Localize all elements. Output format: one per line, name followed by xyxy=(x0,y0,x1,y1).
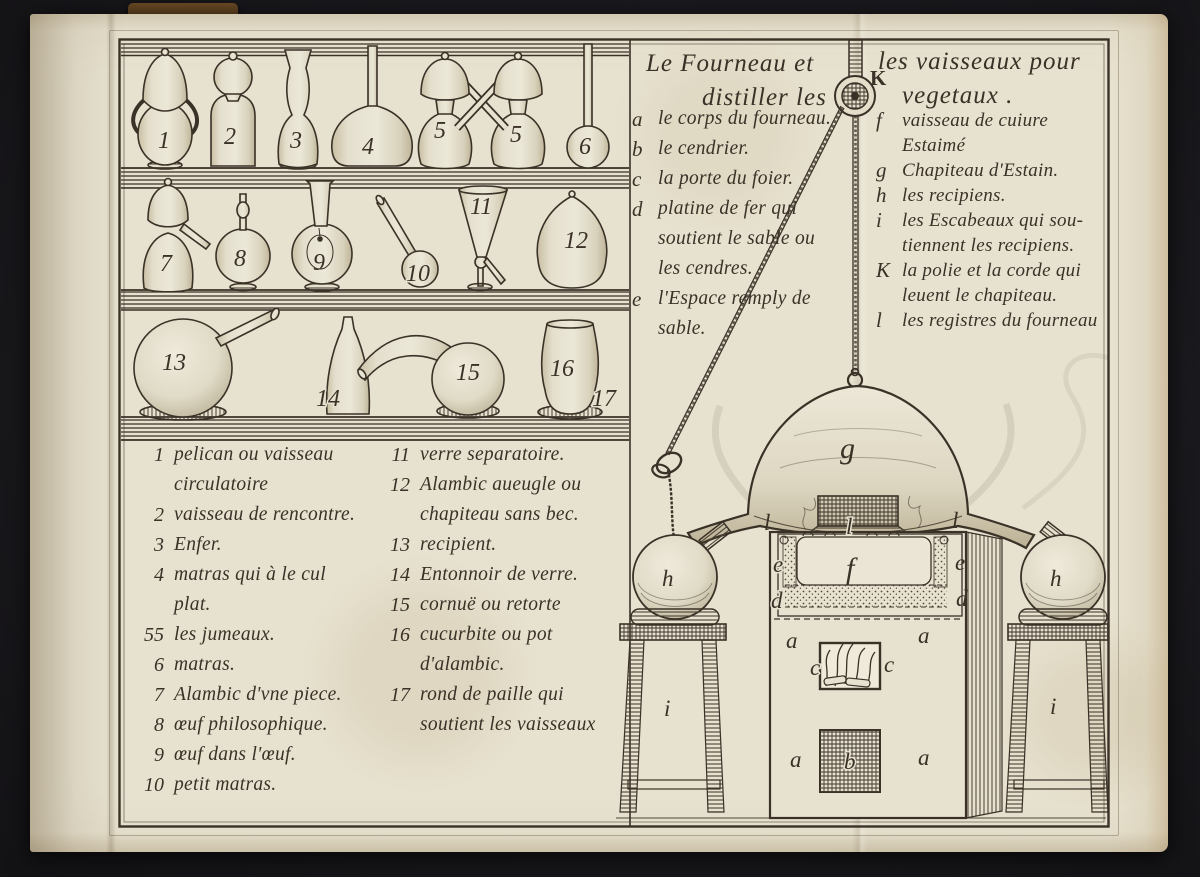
label-c-left: c xyxy=(810,655,820,680)
vessel-number: 5 xyxy=(510,122,522,148)
legend-item: lles registres du fourneau xyxy=(876,308,1112,333)
legend-key: l xyxy=(876,308,902,333)
legend-item: gChapiteau d'Estain. xyxy=(876,158,1112,183)
legend-item: 17rond de paille quisoutient les vaissea… xyxy=(380,680,630,740)
shelf-row-2-vessels xyxy=(143,179,607,292)
vessel-number: 5 xyxy=(434,118,446,144)
letter-legend-left: ale corps du fourneau.ble cendrier.cla p… xyxy=(632,104,870,344)
legend-key: 4 xyxy=(134,560,174,590)
vessel-number: 13 xyxy=(162,350,186,376)
legend-key: 8 xyxy=(134,710,174,740)
legend-key: 13 xyxy=(380,530,420,560)
legend-key: c xyxy=(632,164,658,194)
legend-key: b xyxy=(632,134,658,164)
label-a-bottom-right: a xyxy=(918,745,930,770)
legend-key: K xyxy=(876,258,902,283)
legend-item: 55les jumeaux. xyxy=(134,620,384,650)
legend-key: 16 xyxy=(380,620,420,650)
legend-key: g xyxy=(876,158,902,183)
legend-item: 3Enfer. xyxy=(134,530,384,560)
legend-item: 2vaisseau de rencontre. xyxy=(134,500,384,530)
legend-text: les jumeaux. xyxy=(174,620,275,650)
legend-text: matras qui à le culplat. xyxy=(174,560,326,620)
label-c-right: c xyxy=(884,652,894,677)
pulley-label-K: K xyxy=(870,66,886,91)
vessel-number: 6 xyxy=(579,134,591,160)
legend-item: 15cornuë ou retorte xyxy=(380,590,630,620)
legend-key: 14 xyxy=(380,560,420,590)
legend-item: 11verre separatoire. xyxy=(380,440,630,470)
legend-text: rond de paille quisoutient les vaisseaux xyxy=(420,680,596,740)
vessel-number: 1 xyxy=(158,128,170,154)
legend-key: 6 xyxy=(134,650,174,680)
legend-text: vaisseau de cuiureEstaimé xyxy=(902,108,1048,158)
label-l-left: l xyxy=(764,510,770,535)
legend-text: recipient. xyxy=(420,530,496,560)
label-e-right: e xyxy=(955,550,965,575)
legend-item: 14Entonnoir de verre. xyxy=(380,560,630,590)
legend-key: h xyxy=(876,183,902,208)
plate-title-line1-right: les vaisseaux pour xyxy=(878,48,1081,76)
label-l-right: l xyxy=(952,508,958,533)
legend-item: 16cucurbite ou potd'alambic. xyxy=(380,620,630,680)
book-page: 1 2 3 4 5 5 6 7 8 9 10 11 12 13 14 15 16 xyxy=(30,14,1168,852)
legend-text: les Escabeaux qui sou-tiennent les recip… xyxy=(902,208,1083,258)
legend-text: la porte du foier. xyxy=(658,164,793,194)
legend-item: 12Alambic aueugle ouchapiteau sans bec. xyxy=(380,470,630,530)
plate-title-line2-right: vegetaux . xyxy=(902,82,1013,110)
legend-key: f xyxy=(876,108,902,133)
legend-key: d xyxy=(632,194,658,224)
shelf-row-3-vessels xyxy=(134,307,602,420)
legend-text: matras. xyxy=(174,650,235,680)
legend-text: Enfer. xyxy=(174,530,222,560)
vessel-number: 16 xyxy=(550,356,574,382)
label-a-bottom-left: a xyxy=(790,747,802,772)
legend-text: œuf philosophique. xyxy=(174,710,328,740)
legend-text: Chapiteau d'Estain. xyxy=(902,158,1059,183)
legend-item: ble cendrier. xyxy=(632,134,870,164)
legend-key: 17 xyxy=(380,680,420,710)
vessel-number: 2 xyxy=(224,124,236,150)
vessel-number: 14 xyxy=(316,386,340,412)
legend-item: 1pelican ou vaisseaucirculatoire xyxy=(134,440,384,500)
label-i-right: i xyxy=(1050,694,1056,719)
label-l-center: l xyxy=(846,514,852,539)
label-d-left: d xyxy=(771,588,783,613)
legend-item: ale corps du fourneau. xyxy=(632,104,870,134)
legend-item: 8œuf philosophique. xyxy=(134,710,384,740)
legend-key: 15 xyxy=(380,590,420,620)
number-legend-col2: 11verre separatoire.12Alambic aueugle ou… xyxy=(380,440,630,740)
letter-legend-right: fvaisseau de cuiureEstaimégChapiteau d'E… xyxy=(876,108,1112,333)
label-d-right: d xyxy=(956,586,968,611)
legend-text: verre separatoire. xyxy=(420,440,565,470)
vessel-number: 10 xyxy=(406,261,430,287)
vessel-number: 11 xyxy=(470,194,492,220)
legend-key: 9 xyxy=(134,740,174,770)
legend-item: 9œuf dans l'œuf. xyxy=(134,740,384,770)
legend-item: 13recipient. xyxy=(380,530,630,560)
vessel-number: 12 xyxy=(564,228,588,254)
legend-text: platine de fer quisoutient le sable oule… xyxy=(658,194,815,284)
legend-text: Alambic aueugle ouchapiteau sans bec. xyxy=(420,470,581,530)
vessel-number: 9 xyxy=(313,250,325,276)
legend-text: l'Espace remply desable. xyxy=(658,284,811,344)
legend-key: a xyxy=(632,104,658,134)
vessel-number: 15 xyxy=(456,360,480,386)
plate-title-line1-left: Le Fourneau et xyxy=(646,50,814,78)
label-h-right: h xyxy=(1050,566,1062,591)
legend-key: 1 xyxy=(134,440,174,470)
legend-text: les registres du fourneau xyxy=(902,308,1098,333)
label-b: b xyxy=(844,749,856,774)
legend-text: le corps du fourneau. xyxy=(658,104,831,134)
legend-key: 3 xyxy=(134,530,174,560)
label-e-left: e xyxy=(773,552,783,577)
legend-key: 12 xyxy=(380,470,420,500)
legend-text: le cendrier. xyxy=(658,134,749,164)
legend-text: petit matras. xyxy=(174,770,277,800)
legend-text: pelican ou vaisseaucirculatoire xyxy=(174,440,334,500)
legend-key: 11 xyxy=(380,440,420,470)
legend-item: el'Espace remply desable. xyxy=(632,284,870,344)
engraved-plate: 1 2 3 4 5 5 6 7 8 9 10 11 12 13 14 15 16 xyxy=(118,38,1110,828)
legend-key: i xyxy=(876,208,902,233)
legend-key: 10 xyxy=(134,770,174,800)
legend-key: 55 xyxy=(134,620,174,650)
legend-item: 4matras qui à le culplat. xyxy=(134,560,384,620)
vessel-number: 17 xyxy=(592,386,617,412)
legend-item: dplatine de fer quisoutient le sable oul… xyxy=(632,194,870,284)
legend-item: 7Alambic d'vne piece. xyxy=(134,680,384,710)
label-h-left: h xyxy=(662,566,674,591)
label-g: g xyxy=(840,432,855,465)
legend-text: cucurbite ou potd'alambic. xyxy=(420,620,553,680)
vessel-number: 3 xyxy=(289,128,302,154)
legend-item: cla porte du foier. xyxy=(632,164,870,194)
legend-key: 2 xyxy=(134,500,174,530)
legend-item: iles Escabeaux qui sou-tiennent les reci… xyxy=(876,208,1112,258)
legend-item: 10petit matras. xyxy=(134,770,384,800)
legend-item: fvaisseau de cuiureEstaimé xyxy=(876,108,1112,158)
legend-item: 6matras. xyxy=(134,650,384,680)
vessel-number: 7 xyxy=(160,251,173,277)
legend-text: vaisseau de rencontre. xyxy=(174,500,355,530)
label-i-left: i xyxy=(664,696,670,721)
legend-text: Alambic d'vne piece. xyxy=(174,680,342,710)
label-a-top-left: a xyxy=(786,628,798,653)
legend-text: Entonnoir de verre. xyxy=(420,560,578,590)
legend-item: hles recipiens. xyxy=(876,183,1112,208)
legend-item: Kla polie et la corde quileuent le chapi… xyxy=(876,258,1112,308)
legend-text: les recipiens. xyxy=(902,183,1006,208)
number-legend-col1: 1pelican ou vaisseaucirculatoire2vaissea… xyxy=(134,440,384,800)
photo-backdrop: 1 2 3 4 5 5 6 7 8 9 10 11 12 13 14 15 16 xyxy=(0,0,1200,877)
legend-key: e xyxy=(632,284,658,314)
legend-key: 7 xyxy=(134,680,174,710)
vessel-number: 4 xyxy=(362,134,374,160)
legend-text: œuf dans l'œuf. xyxy=(174,740,296,770)
legend-text: cornuë ou retorte xyxy=(420,590,561,620)
legend-text: la polie et la corde quileuent le chapit… xyxy=(902,258,1081,308)
vessel-number: 8 xyxy=(234,246,246,272)
label-a-top-right: a xyxy=(918,623,930,648)
